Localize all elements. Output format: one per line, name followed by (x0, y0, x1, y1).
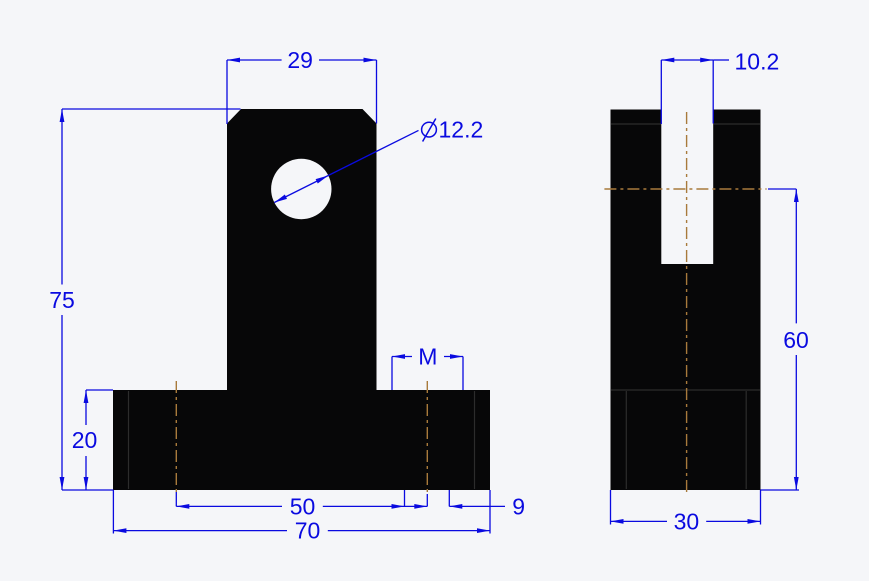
svg-text:75: 75 (49, 287, 75, 313)
svg-text:30: 30 (674, 508, 700, 534)
svg-text:29: 29 (287, 47, 313, 73)
svg-text:M: M (418, 344, 437, 370)
svg-text:10.2: 10.2 (735, 48, 780, 74)
svg-text:60: 60 (783, 327, 809, 353)
svg-text:20: 20 (72, 427, 98, 453)
svg-text:50: 50 (290, 493, 316, 519)
svg-text:70: 70 (295, 518, 321, 544)
svg-text:9: 9 (512, 493, 525, 519)
svg-text:12.2: 12.2 (439, 116, 484, 142)
